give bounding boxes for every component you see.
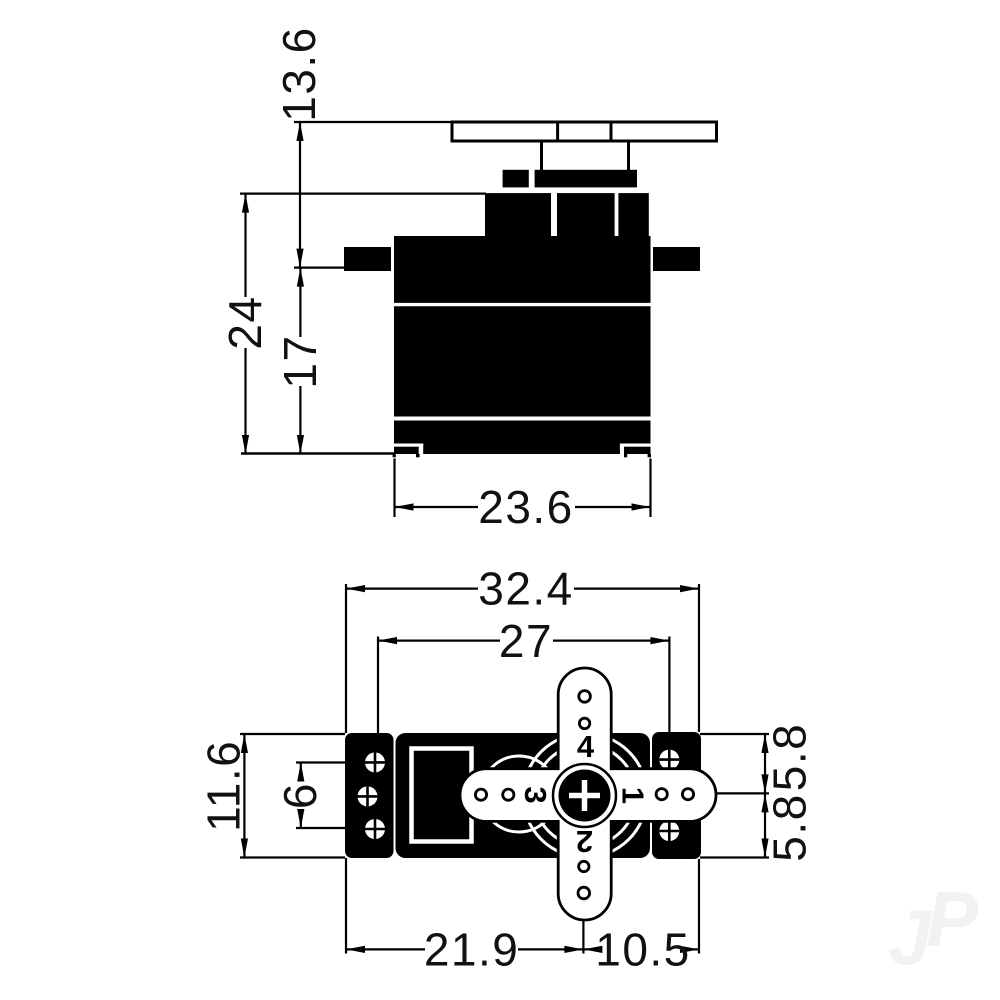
svg-text:1: 1 [616, 787, 651, 804]
svg-text:11.6: 11.6 [198, 740, 250, 832]
svg-text:P: P [926, 875, 979, 963]
svg-text:17: 17 [274, 334, 326, 388]
svg-text:5.8: 5.8 [764, 723, 816, 791]
svg-text:4: 4 [577, 729, 595, 764]
svg-text:10.5: 10.5 [595, 923, 691, 975]
svg-text:24: 24 [219, 295, 271, 349]
svg-text:2: 2 [576, 824, 593, 859]
svg-text:13.6: 13.6 [273, 26, 325, 122]
svg-text:3: 3 [518, 786, 553, 803]
svg-text:6: 6 [274, 782, 326, 809]
svg-text:5.8: 5.8 [764, 793, 816, 861]
svg-text:21.9: 21.9 [424, 923, 520, 975]
svg-text:27: 27 [499, 615, 553, 667]
svg-text:23.6: 23.6 [478, 481, 574, 533]
svg-text:32.4: 32.4 [478, 563, 574, 615]
